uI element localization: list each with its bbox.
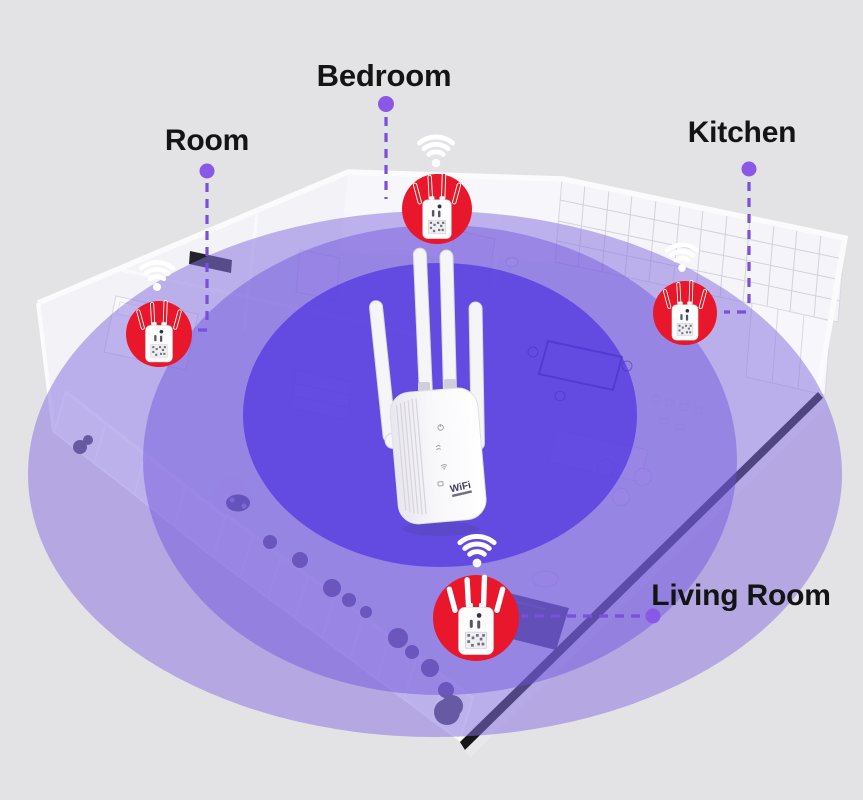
label-kitchen: Kitchen <box>688 116 797 150</box>
label-room: Room <box>165 124 249 158</box>
label-bedroom: Bedroom <box>317 58 452 94</box>
callout-dot-kitchen <box>742 162 757 177</box>
extender-marker-kitchen <box>653 281 717 345</box>
callout-dot-room <box>200 164 215 179</box>
device-body <box>388 386 487 525</box>
wifi-coverage-illustration: WiFi Room Bedroom Kitchen <box>0 0 863 800</box>
callout-dot-bedroom <box>378 96 394 112</box>
wifi-signal-icon-bedroom <box>419 137 452 167</box>
label-living-room: Living Room <box>651 579 830 613</box>
extender-marker-living-room <box>433 575 519 661</box>
